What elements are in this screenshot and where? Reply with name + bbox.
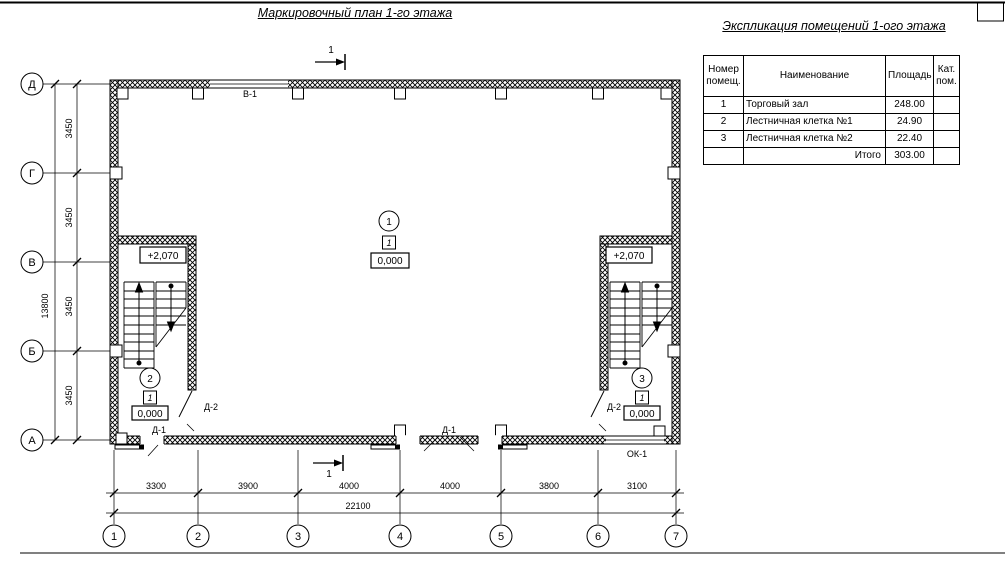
axis-col-label: 3 xyxy=(295,531,301,543)
room-schedule-table: Номер помещ. Наименование Площадь Кат. п… xyxy=(703,55,960,165)
axis-row-label: В xyxy=(28,257,35,269)
room-number-cell: 1 xyxy=(704,97,744,114)
floor-type-mark: 1 xyxy=(639,393,644,403)
axis-row-label: Б xyxy=(28,346,35,358)
section-marks: 1 1 xyxy=(313,45,345,480)
room-name-cell: Торговый зал xyxy=(744,97,886,114)
table-row: 2 Лестничная клетка №1 24.90 xyxy=(704,114,960,131)
room-marker-3: 3 1 0,000 xyxy=(624,368,660,420)
room-area-cell: 248.00 xyxy=(886,97,934,114)
room-marker-1: 1 1 0,000 xyxy=(371,211,409,268)
dim-label: 3450 xyxy=(64,296,74,316)
level-mark: 0,000 xyxy=(629,409,654,420)
empty-cell xyxy=(704,148,744,165)
dim-label: 4000 xyxy=(440,481,460,491)
total-area-cell: 303.00 xyxy=(886,148,934,165)
empty-cell xyxy=(934,148,960,165)
room-name-cell: Лестничная клетка №1 xyxy=(744,114,886,131)
drawing-sheet: 3450 3450 3450 3450 13800 3300 3900 4000… xyxy=(0,0,1005,565)
section-mark-top: 1 xyxy=(315,45,345,70)
table-row: 1 Торговый зал 248.00 xyxy=(704,97,960,114)
axis-row-label: Г xyxy=(29,168,35,180)
axis-col-label: 5 xyxy=(498,531,504,543)
col-header-name: Наименование xyxy=(744,56,886,97)
left-dimensions: 3450 3450 3450 3450 13800 xyxy=(40,80,110,444)
floor-type-mark: 1 xyxy=(386,238,391,248)
room-number: 3 xyxy=(639,374,645,385)
window-ok1: ОК-1 xyxy=(606,435,664,459)
axis-col-label: 7 xyxy=(673,531,679,543)
level-mark: 0,000 xyxy=(377,256,402,267)
axis-col-label: 4 xyxy=(397,531,403,543)
plan-title: Маркировочный план 1-го этажа xyxy=(230,6,480,20)
dim-label: 3300 xyxy=(146,481,166,491)
dim-label: 3800 xyxy=(539,481,559,491)
room-category-cell xyxy=(934,97,960,114)
room-name-cell: Лестничная клетка №2 xyxy=(744,131,886,148)
axis-row-label: А xyxy=(28,435,36,447)
col-header-area: Площадь xyxy=(886,56,934,97)
col-header-category: Кат. пом. xyxy=(934,56,960,97)
door-d2-label: Д-2 xyxy=(204,402,218,412)
window-v1-label: В-1 xyxy=(243,89,257,99)
stairwell-right: +2,070 xyxy=(600,236,672,390)
col-header-number: Номер помещ. xyxy=(704,56,744,97)
bottom-dimensions: 3300 3900 4000 4000 3800 3100 22100 xyxy=(106,450,684,524)
axis-col-label: 1 xyxy=(111,531,117,543)
stairwell-left: +2,070 xyxy=(118,236,196,390)
dim-label: 3900 xyxy=(238,481,258,491)
room-area-cell: 22.40 xyxy=(886,131,934,148)
floor-type-mark: 1 xyxy=(147,393,152,403)
room-schedule-title: Экспликация помещений 1-ого этажа xyxy=(706,19,962,33)
section-mark-bottom: 1 xyxy=(313,455,343,480)
dim-label: 3100 xyxy=(627,481,647,491)
total-label-cell: Итого xyxy=(744,148,886,165)
level-mark: 0,000 xyxy=(137,409,162,420)
axis-col-label: 2 xyxy=(195,531,201,543)
row-axis-bubbles: Д Г В Б А xyxy=(21,73,43,451)
dim-label: 3450 xyxy=(64,207,74,227)
door-d1-label: Д-1 xyxy=(442,425,456,435)
table-row: 3 Лестничная клетка №2 22.40 xyxy=(704,131,960,148)
window-v1: В-1 xyxy=(210,79,288,99)
section-number: 1 xyxy=(328,45,334,56)
elevation-mark: +2,070 xyxy=(614,251,645,262)
room-number-cell: 2 xyxy=(704,114,744,131)
stair-direction-arrows xyxy=(136,283,175,365)
dim-label: 3450 xyxy=(64,118,74,138)
table-total-row: Итого 303.00 xyxy=(704,148,960,165)
stair-direction-arrows xyxy=(622,283,661,365)
room-area-cell: 24.90 xyxy=(886,114,934,131)
room-number: 1 xyxy=(386,217,392,228)
col-axis-bubbles: 1 2 3 4 5 6 7 xyxy=(103,525,687,547)
door-d1-label: Д-1 xyxy=(152,425,166,435)
dim-total-label: 22100 xyxy=(345,501,370,511)
frame-corner-box xyxy=(978,3,1004,21)
axis-row-label: Д xyxy=(28,79,36,91)
window-ok1-label: ОК-1 xyxy=(627,449,647,459)
dim-label: 4000 xyxy=(339,481,359,491)
room-markers: 1 1 0,000 2 1 0,000 3 1 0,000 xyxy=(132,211,660,420)
room-number: 2 xyxy=(147,374,153,385)
door-d2-label: Д-2 xyxy=(607,402,621,412)
room-number-cell: 3 xyxy=(704,131,744,148)
axis-col-label: 6 xyxy=(595,531,601,543)
section-number: 1 xyxy=(326,469,332,480)
dim-total-label: 13800 xyxy=(40,293,50,318)
room-marker-2: 2 1 0,000 xyxy=(132,368,168,420)
dim-label: 3450 xyxy=(64,385,74,405)
room-category-cell xyxy=(934,131,960,148)
elevation-mark: +2,070 xyxy=(148,251,179,262)
room-category-cell xyxy=(934,114,960,131)
